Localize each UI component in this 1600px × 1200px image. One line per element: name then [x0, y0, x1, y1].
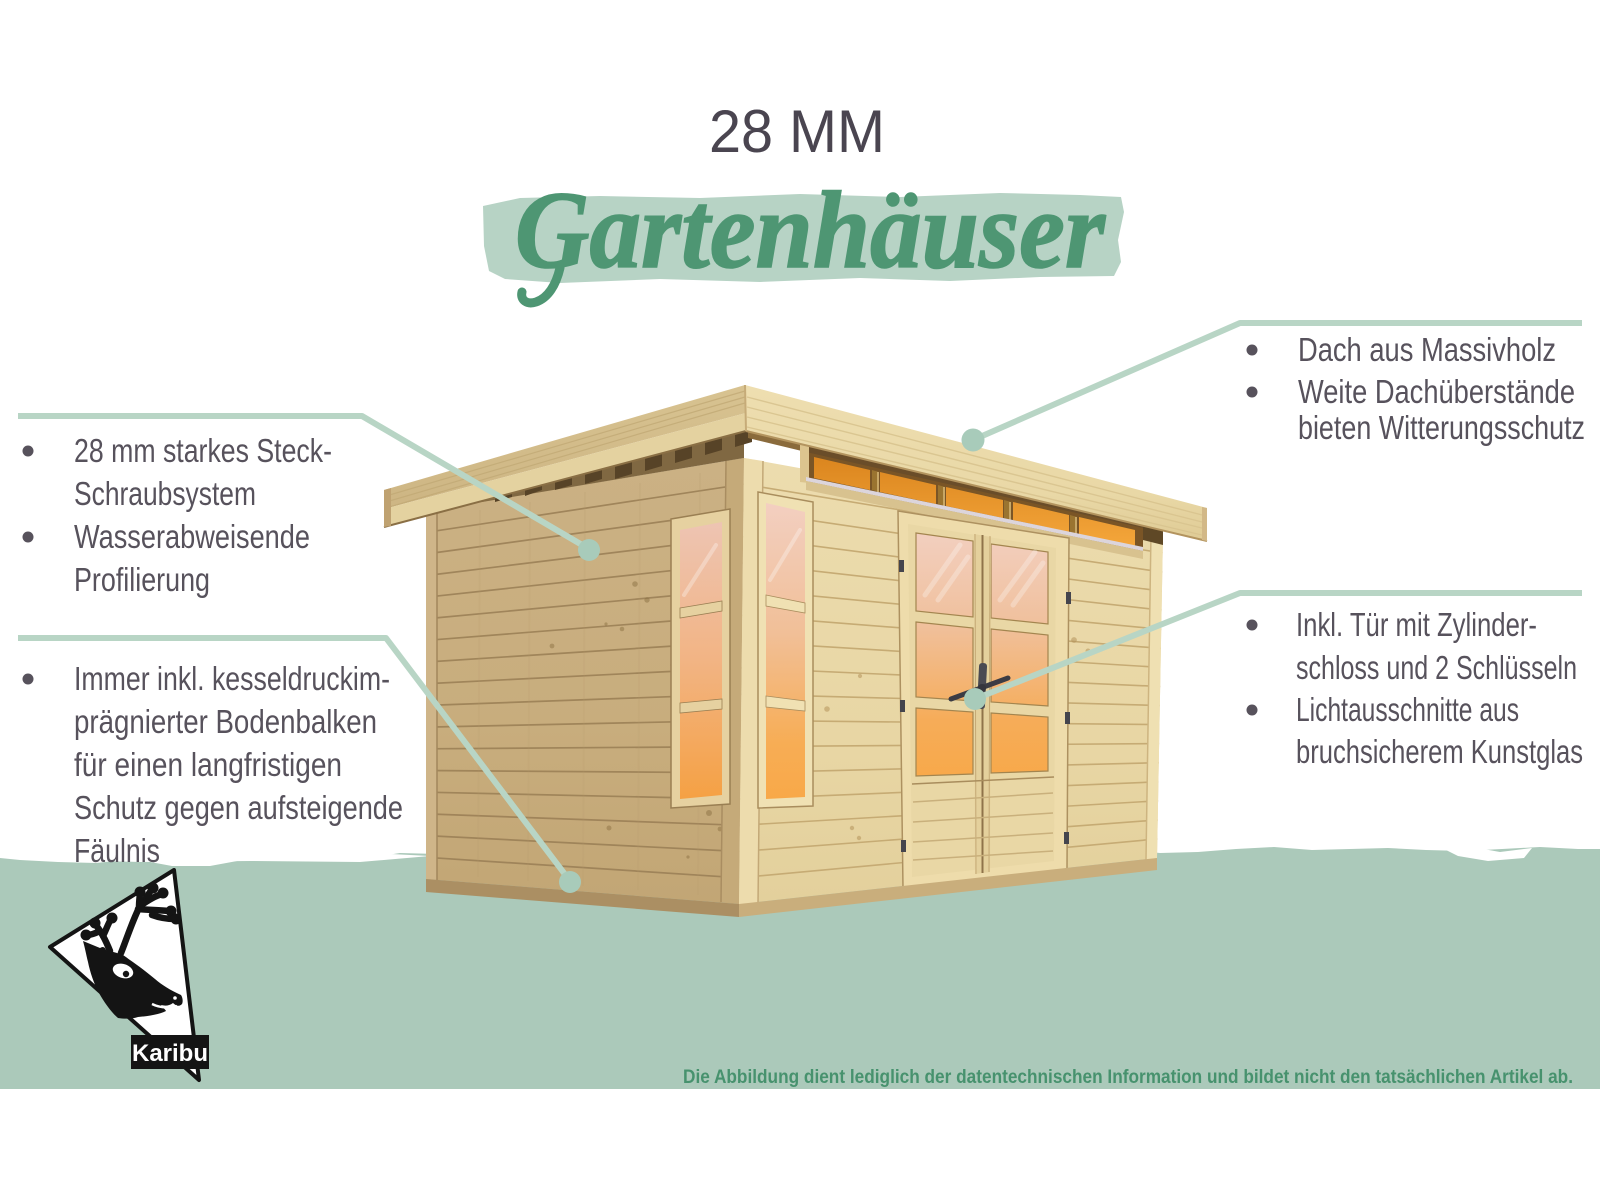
- svg-text:Weite Dachüberstände: Weite Dachüberstände: [1298, 373, 1575, 410]
- svg-text:prägnierter Bodenbalken: prägnierter Bodenbalken: [74, 703, 377, 740]
- svg-text:für einen langfristigen: für einen langfristigen: [74, 746, 342, 783]
- svg-text:28 MM: 28 MM: [709, 98, 885, 165]
- svg-text:Wasserabweisende: Wasserabweisende: [74, 518, 310, 555]
- svg-text:Fäulnis: Fäulnis: [74, 832, 160, 869]
- svg-text:Profilierung: Profilierung: [74, 561, 210, 598]
- svg-text:Inkl. Tür mit Zylinder-: Inkl. Tür mit Zylinder-: [1296, 606, 1537, 643]
- svg-text:Die Abbildung dient lediglich: Die Abbildung dient lediglich der datent…: [683, 1066, 1573, 1088]
- svg-text:bieten Witterungsschutz: bieten Witterungsschutz: [1298, 409, 1585, 446]
- svg-text:Gartenhäuser: Gartenhäuser: [515, 169, 1106, 291]
- svg-text:Lichtausschnitte aus: Lichtausschnitte aus: [1296, 691, 1519, 728]
- svg-text:28 mm starkes Steck-: 28 mm starkes Steck-: [74, 432, 332, 469]
- svg-text:schloss und 2 Schlüsseln: schloss und 2 Schlüsseln: [1296, 649, 1577, 686]
- svg-text:bruchsicherem Kunstglas: bruchsicherem Kunstglas: [1296, 733, 1583, 770]
- svg-text:Karibu: Karibu: [132, 1040, 208, 1067]
- svg-text:Immer inkl. kesseldruckim-: Immer inkl. kesseldruckim-: [74, 660, 390, 697]
- svg-text:Schutz gegen aufsteigende: Schutz gegen aufsteigende: [74, 789, 403, 826]
- svg-text:Schraubsystem: Schraubsystem: [74, 475, 256, 512]
- svg-text:Dach aus Massivholz: Dach aus Massivholz: [1298, 331, 1556, 368]
